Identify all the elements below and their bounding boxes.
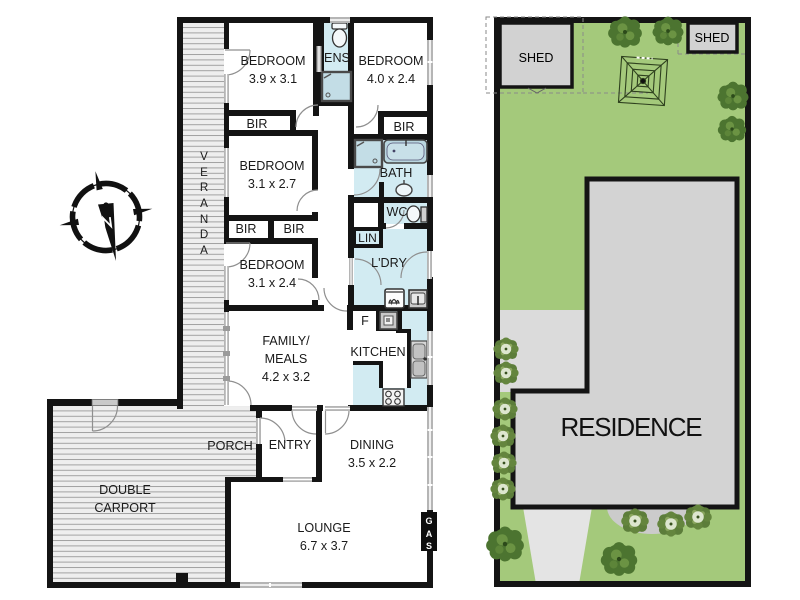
svg-text:KITCHEN: KITCHEN bbox=[350, 345, 405, 359]
svg-text:4.0 x 2.4: 4.0 x 2.4 bbox=[367, 72, 415, 86]
svg-text:BIR: BIR bbox=[236, 222, 257, 236]
svg-text:BEDROOM: BEDROOM bbox=[239, 159, 304, 173]
svg-text:ENTRY: ENTRY bbox=[269, 438, 312, 452]
svg-text:D: D bbox=[200, 228, 208, 241]
svg-text:4.2 x 3.2: 4.2 x 3.2 bbox=[262, 370, 310, 384]
svg-text:S: S bbox=[426, 541, 432, 551]
svg-text:BIR: BIR bbox=[247, 117, 268, 131]
svg-text:CARPORT: CARPORT bbox=[94, 501, 156, 515]
svg-text:N: N bbox=[200, 213, 208, 226]
svg-text:L'DRY: L'DRY bbox=[371, 256, 407, 270]
svg-text:3.5 x 2.2: 3.5 x 2.2 bbox=[348, 456, 396, 470]
svg-text:FAMILY/: FAMILY/ bbox=[262, 334, 310, 348]
svg-text:PORCH: PORCH bbox=[207, 439, 252, 453]
svg-text:3.1 x 2.7: 3.1 x 2.7 bbox=[248, 177, 296, 191]
svg-text:BIR: BIR bbox=[284, 222, 305, 236]
svg-text:E: E bbox=[200, 166, 208, 179]
svg-text:6.7 x 3.7: 6.7 x 3.7 bbox=[300, 539, 348, 553]
svg-text:BEDROOM: BEDROOM bbox=[239, 258, 304, 272]
svg-text:A: A bbox=[200, 197, 208, 210]
svg-text:LOUNGE: LOUNGE bbox=[297, 521, 350, 535]
svg-text:ENS: ENS bbox=[324, 51, 350, 65]
svg-text:MEALS: MEALS bbox=[265, 352, 308, 366]
svg-text:3.1 x 2.4: 3.1 x 2.4 bbox=[248, 276, 296, 290]
svg-text:BEDROOM: BEDROOM bbox=[358, 54, 423, 68]
svg-text:3.9 x 3.1: 3.9 x 3.1 bbox=[249, 72, 297, 86]
svg-text:SHED: SHED bbox=[519, 51, 554, 65]
svg-text:SHED: SHED bbox=[695, 31, 730, 45]
svg-text:G: G bbox=[425, 516, 432, 526]
svg-text:WC: WC bbox=[387, 205, 408, 219]
svg-text:BIR: BIR bbox=[394, 120, 415, 134]
svg-text:RESIDENCE: RESIDENCE bbox=[561, 412, 703, 442]
svg-text:LIN: LIN bbox=[358, 231, 377, 245]
svg-text:A: A bbox=[426, 529, 433, 539]
svg-text:BATH: BATH bbox=[380, 166, 413, 180]
svg-text:R: R bbox=[200, 181, 208, 194]
svg-text:DINING: DINING bbox=[350, 438, 394, 452]
svg-text:F: F bbox=[361, 314, 369, 328]
svg-text:A: A bbox=[200, 244, 208, 257]
svg-text:DOUBLE: DOUBLE bbox=[99, 483, 151, 497]
svg-text:V: V bbox=[200, 150, 208, 163]
svg-text:BEDROOM: BEDROOM bbox=[240, 54, 305, 68]
